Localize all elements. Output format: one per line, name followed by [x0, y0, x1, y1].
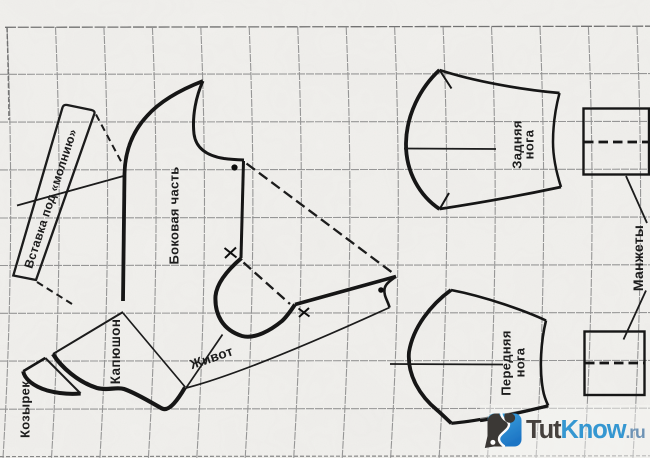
svg-text:Боковая часть: Боковая часть: [167, 166, 182, 264]
svg-text:нога: нога: [522, 129, 537, 159]
svg-text:Капюшон: Капюшон: [108, 319, 123, 384]
svg-text:нога: нога: [513, 347, 528, 377]
svg-text:Козырек: Козырек: [18, 381, 33, 438]
svg-text:Манжеты: Манжеты: [630, 225, 646, 291]
svg-text:Передняя: Передняя: [499, 330, 514, 395]
